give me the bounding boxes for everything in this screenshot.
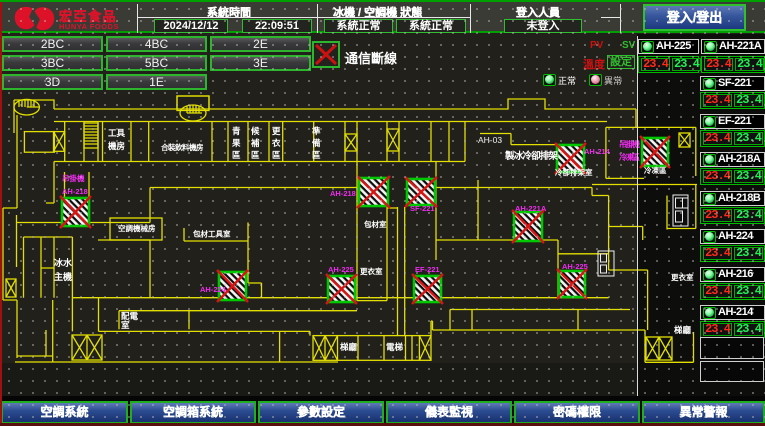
- svg-text:包材室: 包材室: [363, 219, 387, 229]
- svg-text:吊掛機: 吊掛機: [62, 173, 85, 183]
- svg-text:青: 青: [232, 126, 241, 136]
- svg-text:機房: 機房: [108, 141, 125, 151]
- svg-text:SF-221: SF-221: [410, 204, 435, 213]
- svg-text:AH-03: AH-03: [478, 135, 502, 145]
- svg-text:工具: 工具: [108, 128, 126, 138]
- svg-text:補: 補: [250, 138, 260, 148]
- svg-text:室: 室: [121, 320, 130, 330]
- svg-text:更衣室: 更衣室: [360, 266, 383, 276]
- svg-text:更衣室: 更衣室: [671, 272, 694, 282]
- svg-text:空調機械房: 空調機械房: [118, 223, 156, 233]
- svg-text:準: 準: [312, 126, 321, 136]
- svg-text:AH-214: AH-214: [584, 147, 611, 156]
- svg-text:AH-218: AH-218: [330, 189, 356, 198]
- svg-text:AH-225: AH-225: [328, 265, 354, 274]
- svg-text:衣: 衣: [272, 138, 281, 148]
- svg-text:區: 區: [251, 150, 260, 160]
- svg-text:包材工具室: 包材工具室: [192, 229, 231, 239]
- svg-text:備: 備: [312, 138, 321, 148]
- svg-text:AH-221A: AH-221A: [515, 204, 547, 213]
- svg-text:AH-218: AH-218: [62, 187, 88, 196]
- svg-text:AH-225: AH-225: [562, 262, 588, 271]
- svg-text:EF-221: EF-221: [415, 265, 440, 274]
- svg-text:電梯: 電梯: [386, 342, 404, 352]
- svg-text:更: 更: [272, 126, 281, 136]
- svg-text:果: 果: [231, 138, 241, 148]
- svg-text:候: 候: [251, 126, 260, 136]
- svg-text:梯廳: 梯廳: [674, 325, 692, 335]
- svg-text:製冰冷卻排架: 製冰冷卻排架: [504, 150, 559, 162]
- svg-text:梯廳: 梯廳: [340, 342, 358, 352]
- svg-text:冷凍區: 冷凍區: [644, 165, 667, 175]
- svg-text:冰水: 冰水: [54, 257, 73, 268]
- svg-text:區: 區: [232, 150, 241, 160]
- svg-text:區: 區: [272, 150, 281, 160]
- svg-text:冷卻排架室: 冷卻排架室: [555, 167, 593, 177]
- svg-text:AH-224: AH-224: [200, 285, 227, 294]
- svg-text:區: 區: [312, 150, 321, 160]
- svg-text:主機: 主機: [54, 271, 72, 282]
- svg-text:合裝飲料機房: 合裝飲料機房: [161, 142, 204, 152]
